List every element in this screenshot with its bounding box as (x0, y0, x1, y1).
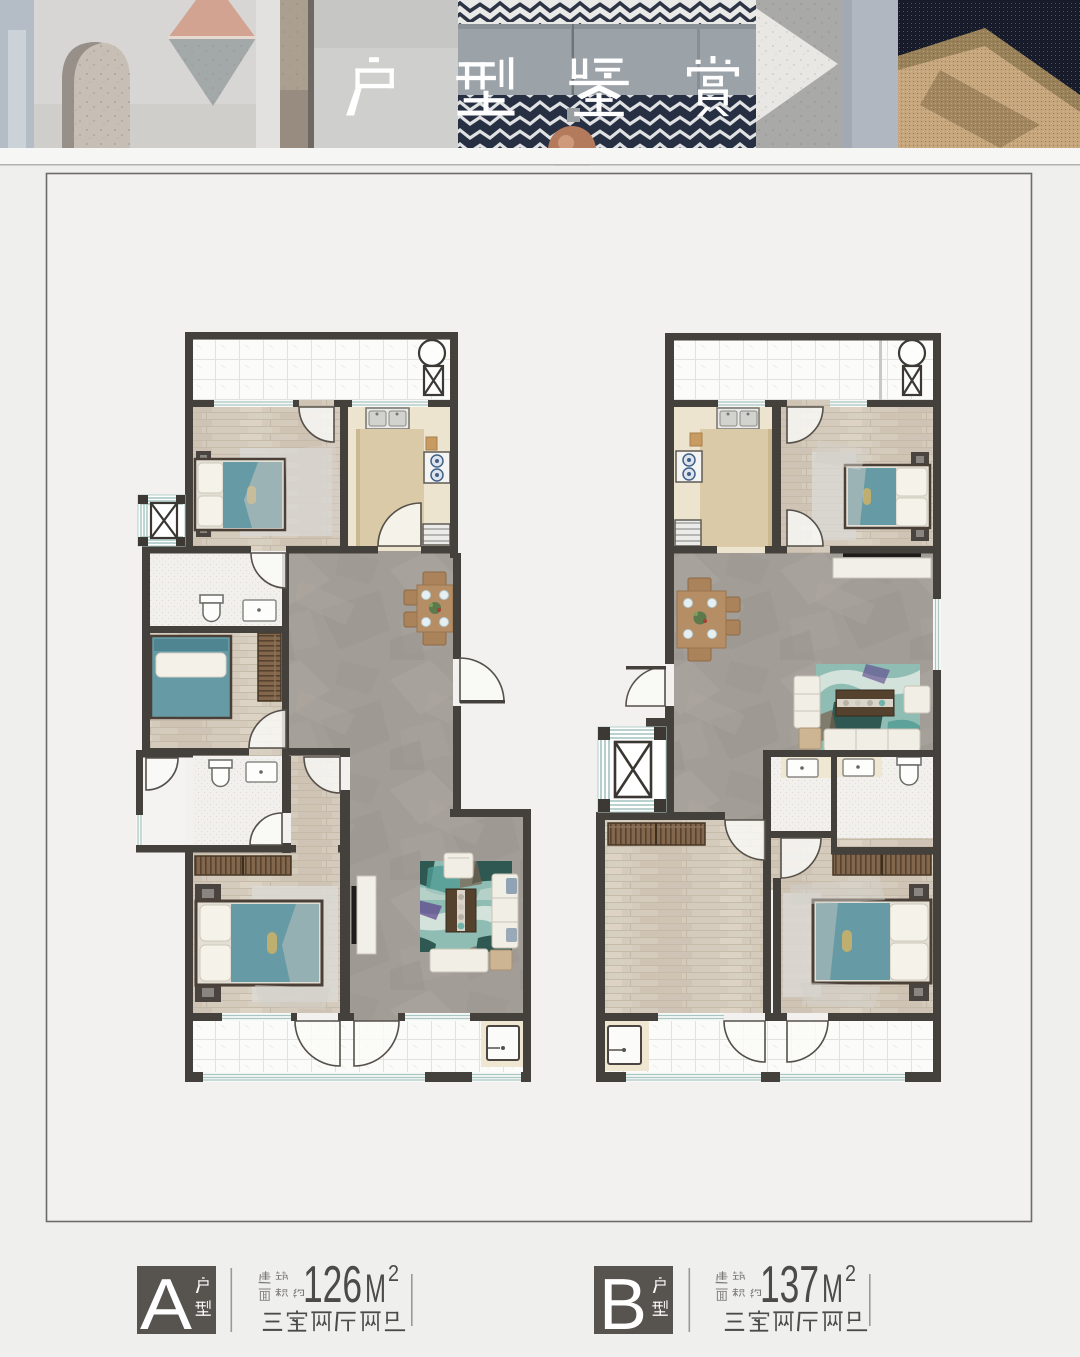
svg-text:126: 126 (303, 1256, 362, 1314)
svg-text:B: B (599, 1265, 647, 1345)
svg-text:M: M (365, 1267, 386, 1311)
svg-text:M: M (822, 1267, 843, 1311)
svg-text:137: 137 (760, 1256, 819, 1314)
svg-text:2: 2 (388, 1260, 399, 1286)
svg-text:2: 2 (845, 1260, 856, 1286)
svg-text:A: A (140, 1265, 192, 1345)
